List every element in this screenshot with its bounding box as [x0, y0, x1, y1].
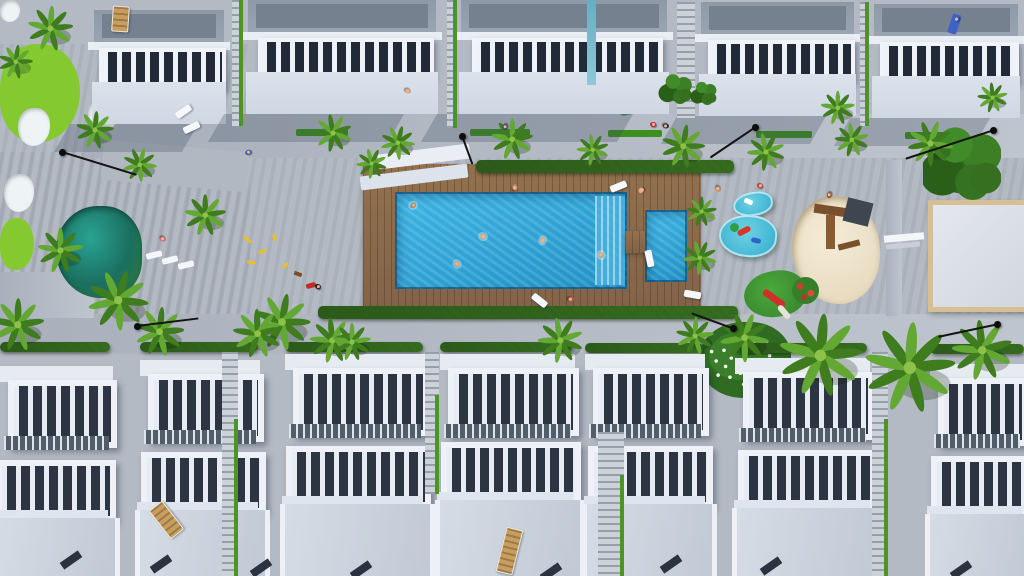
palm-tree — [818, 88, 858, 128]
person-head — [639, 188, 643, 192]
roof-terrace — [0, 518, 120, 576]
person-head — [665, 125, 668, 128]
palm-tree — [534, 314, 587, 367]
sand-bunker — [0, 0, 20, 22]
person-head — [716, 187, 720, 191]
palm-tree — [0, 42, 36, 82]
street-lamp — [994, 321, 1001, 328]
balcony-railing — [934, 434, 1020, 448]
palm-tree — [354, 146, 389, 181]
palm-tree — [744, 130, 788, 174]
red-flower-bush — [792, 277, 819, 304]
play-structure — [826, 215, 835, 249]
balcony-railing — [4, 436, 109, 450]
apartment-wall — [459, 72, 669, 114]
person — [405, 89, 411, 94]
palm-tree — [34, 224, 87, 277]
person-head — [758, 183, 762, 187]
person-head — [246, 150, 250, 154]
apartment-roof-inner — [882, 8, 1010, 32]
roof-terrace — [732, 508, 882, 576]
person — [650, 122, 656, 127]
alley-garden-strip — [234, 419, 238, 576]
person-head — [827, 194, 830, 197]
alley-garden-strip — [239, 0, 243, 126]
palm-tree — [330, 320, 374, 364]
alley-garden-strip — [865, 2, 869, 126]
person-head — [599, 253, 603, 257]
palm-tree — [772, 307, 869, 404]
person-head — [541, 239, 544, 242]
street-lamp — [730, 325, 737, 332]
pool-steps — [595, 196, 625, 285]
pool-toy — [730, 223, 739, 232]
balcony-railing — [289, 424, 421, 438]
person-head — [503, 125, 507, 129]
street-lamp — [59, 149, 66, 156]
street-lamp — [134, 323, 141, 330]
apartment-roof-inner — [256, 4, 428, 28]
apartment-roof-inner — [469, 4, 659, 28]
palm-tree — [680, 238, 720, 278]
palm-tree — [488, 115, 536, 163]
palm-tree — [131, 303, 188, 360]
palm-tree — [120, 145, 160, 185]
person-head — [513, 186, 516, 189]
person-head — [651, 123, 654, 126]
tree — [686, 76, 722, 112]
balcony-railing — [739, 428, 866, 442]
palm-tree — [229, 305, 286, 362]
person-head — [569, 297, 573, 301]
palm-tree — [0, 294, 49, 356]
swimming-pool — [395, 192, 627, 289]
palm-tree — [574, 131, 611, 168]
person — [826, 192, 831, 199]
palm-tree — [716, 309, 773, 366]
alley-garden-strip — [620, 475, 624, 576]
roof-terrace — [280, 504, 435, 576]
person-head — [954, 17, 958, 21]
person — [663, 124, 669, 129]
glass-stair-strip — [587, 0, 596, 85]
apartment-roof-inner — [709, 6, 846, 30]
street-lamp — [990, 127, 997, 134]
person — [480, 233, 487, 239]
alley-garden-strip — [435, 395, 439, 494]
pool-bridge — [625, 231, 647, 253]
wooden-lounger — [111, 5, 130, 32]
person-head — [411, 203, 415, 207]
palm-tree — [73, 108, 117, 152]
palm-tree — [684, 194, 719, 229]
person-head — [406, 90, 409, 93]
paddle-court — [928, 200, 1024, 312]
roof-terrace — [925, 514, 1024, 576]
person-head — [455, 262, 459, 266]
alley-garden-strip — [884, 419, 888, 576]
street-lamp — [752, 124, 759, 131]
person-head — [161, 237, 165, 241]
person-head — [316, 284, 320, 288]
balcony-railing — [444, 424, 571, 438]
palm-tree — [311, 111, 355, 155]
street-lamp — [459, 133, 466, 140]
alley-garden-strip — [453, 0, 457, 128]
palm-tree — [975, 80, 1010, 115]
palm-tree — [181, 191, 229, 239]
person-head — [481, 234, 485, 238]
balcony-railing — [144, 430, 256, 444]
aerial-render-scene — [0, 0, 1024, 576]
